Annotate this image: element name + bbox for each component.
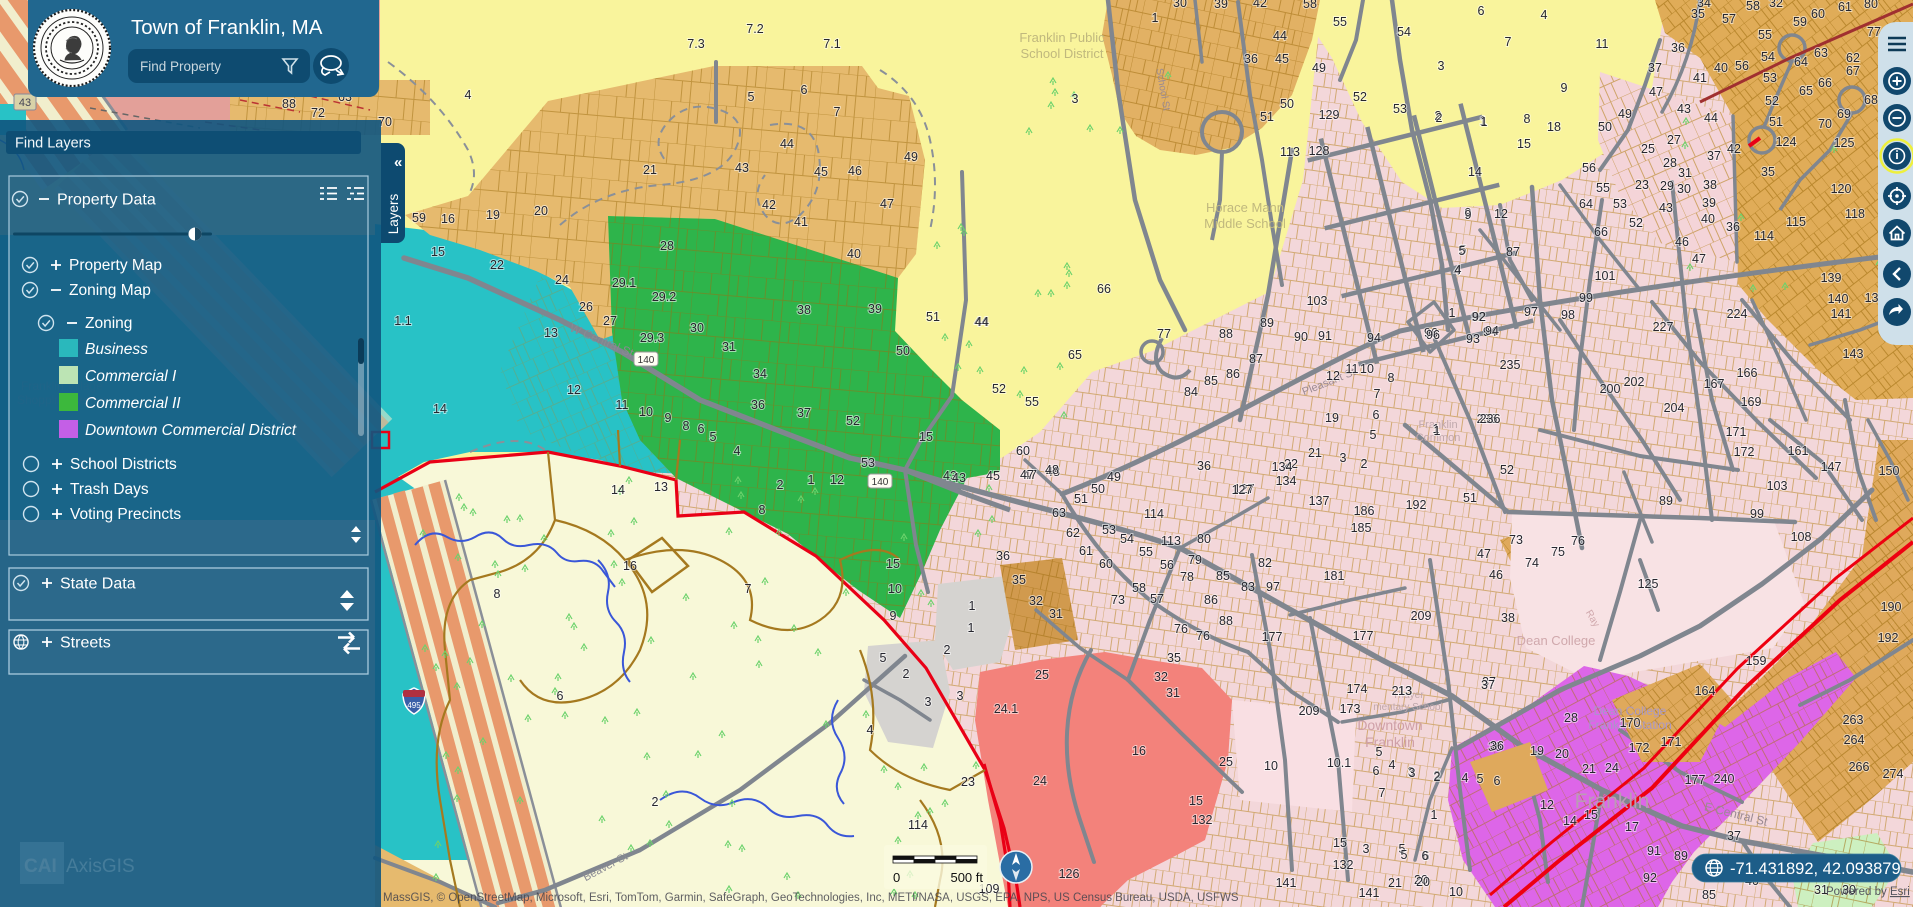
svg-text:0: 0 xyxy=(893,870,900,885)
svg-text:Downtown Commercial District: Downtown Commercial District xyxy=(85,422,297,439)
svg-text:CAI: CAI xyxy=(24,856,57,877)
svg-text:Voting Precincts: Voting Precincts xyxy=(70,506,181,523)
svg-text:Commercial II: Commercial II xyxy=(85,395,181,412)
svg-text:Property Data: Property Data xyxy=(57,192,156,209)
svg-text:Find Property: Find Property xyxy=(140,59,221,74)
svg-text:-71.431892, 42.093879: -71.431892, 42.093879 xyxy=(1730,860,1901,878)
svg-text:Layers: Layers xyxy=(386,193,401,234)
svg-text:Business: Business xyxy=(85,341,148,358)
svg-text:Commercial I: Commercial I xyxy=(85,368,177,385)
svg-text:500 ft: 500 ft xyxy=(950,870,983,885)
svg-text:State Data: State Data xyxy=(60,576,136,593)
svg-text:Streets: Streets xyxy=(60,635,111,652)
svg-text:Zoning Map: Zoning Map xyxy=(69,282,151,299)
svg-text:Property Map: Property Map xyxy=(69,257,162,274)
svg-text:Zoning: Zoning xyxy=(85,315,132,332)
svg-text:AxisGIS: AxisGIS xyxy=(66,856,135,877)
svg-text:«: « xyxy=(394,154,402,171)
svg-text:Town of Franklin, MA: Town of Franklin, MA xyxy=(131,16,323,39)
svg-text:Find Layers: Find Layers xyxy=(15,136,91,152)
svg-text:School Districts: School Districts xyxy=(70,456,177,473)
svg-text:Trash Days: Trash Days xyxy=(70,481,149,498)
